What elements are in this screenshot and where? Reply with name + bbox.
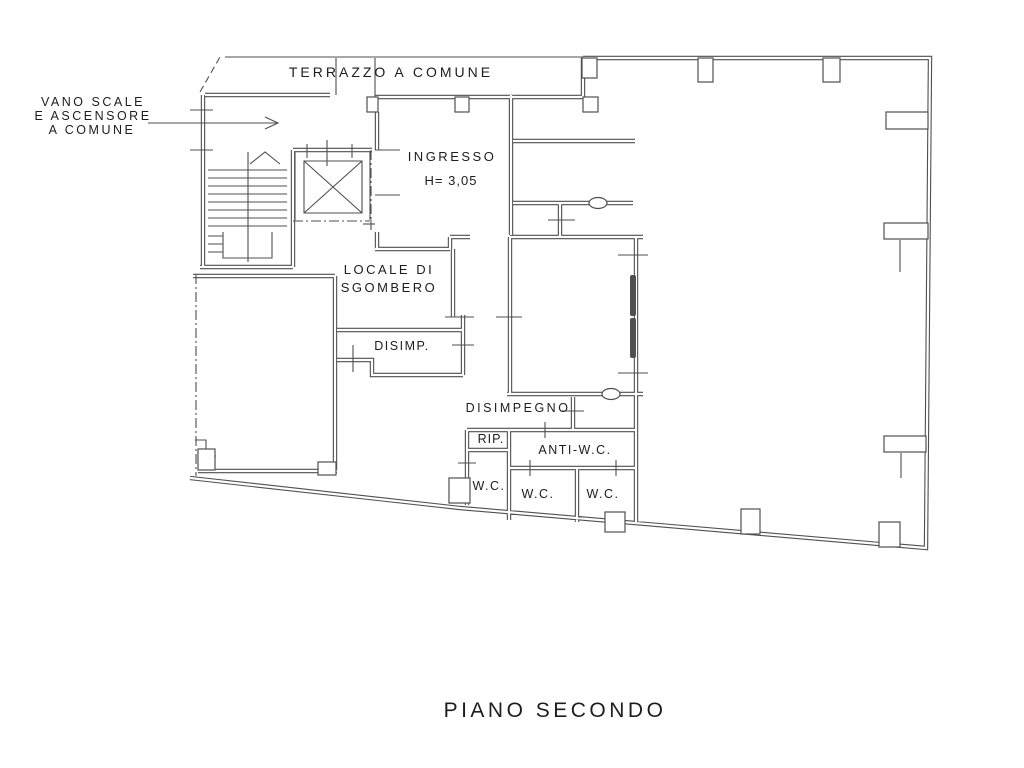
stairwell-note-line2: E ASCENSORE (34, 109, 151, 123)
hallway-abbrev-label: DISIMP. (374, 339, 429, 353)
wc-middle-label: W.C. (521, 487, 554, 501)
hallway-label: DISIMPEGNO (466, 401, 571, 415)
closet-label: RIP. (478, 432, 505, 446)
wc-left-label: W.C. (472, 479, 505, 493)
floor-plan-page: TERRAZZO A COMUNE VANO SCALE E ASCENSORE… (0, 0, 1024, 768)
door-knob-symbols (589, 198, 620, 400)
storage-label-line1: LOCALE DI (344, 262, 434, 277)
entrance-height-label: H= 3,05 (425, 173, 478, 188)
elevator-x-symbol (304, 161, 362, 213)
boundary-dashdot-lines (196, 150, 375, 476)
wall-outline (190, 58, 930, 548)
anti-wc-label: ANTI-W.C. (538, 443, 611, 457)
floor-plan-drawing: TERRAZZO A COMUNE VANO SCALE E ASCENSORE… (0, 0, 1024, 768)
wc-right-label: W.C. (586, 487, 619, 501)
terrace-label: TERRAZZO A COMUNE (289, 64, 493, 80)
pillars (198, 58, 928, 547)
entrance-label: INGRESSO (408, 149, 497, 164)
stairwell-note-line1: VANO SCALE (41, 95, 145, 109)
stair-direction-arrow (250, 152, 280, 164)
annotation-arrow (148, 117, 278, 129)
page-title: PIANO SECONDO (444, 699, 667, 722)
storage-label-line2: SGOMBERO (341, 280, 438, 295)
stairwell-note-line3: A COMUNE (49, 123, 136, 137)
